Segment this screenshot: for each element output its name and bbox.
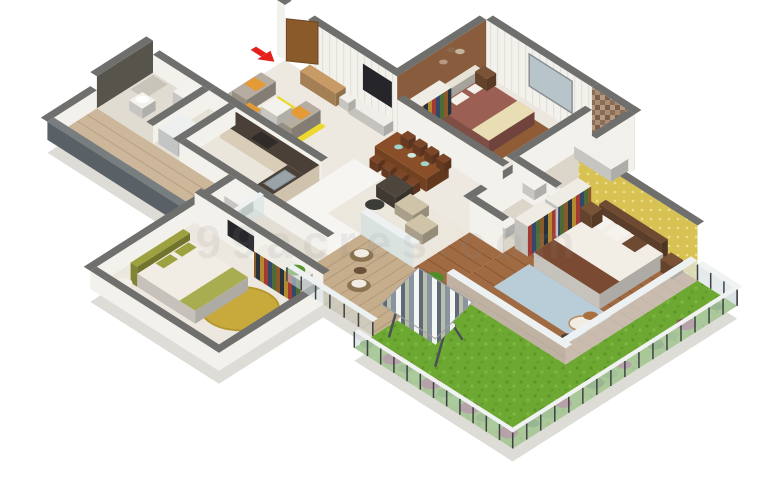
utility-toilet-seat [136,96,149,103]
deck-side-table [354,267,367,274]
page: 99acres.com [0,0,780,490]
wall-plate-decor [447,48,456,53]
wall-plate-decor [455,49,465,54]
floorplan-3d-render: 99acres.com [0,0,780,490]
entry-wall-stub [277,0,285,60]
dining-plate [394,145,403,150]
wall-plate-decor [439,60,448,65]
entrance-door-leaf [286,19,318,64]
dining-plate [407,153,416,158]
deck-chair-cushion [351,279,366,287]
study-side-table [365,199,384,210]
dining-plate [421,161,430,166]
watermark: 99acres.com [196,216,585,268]
